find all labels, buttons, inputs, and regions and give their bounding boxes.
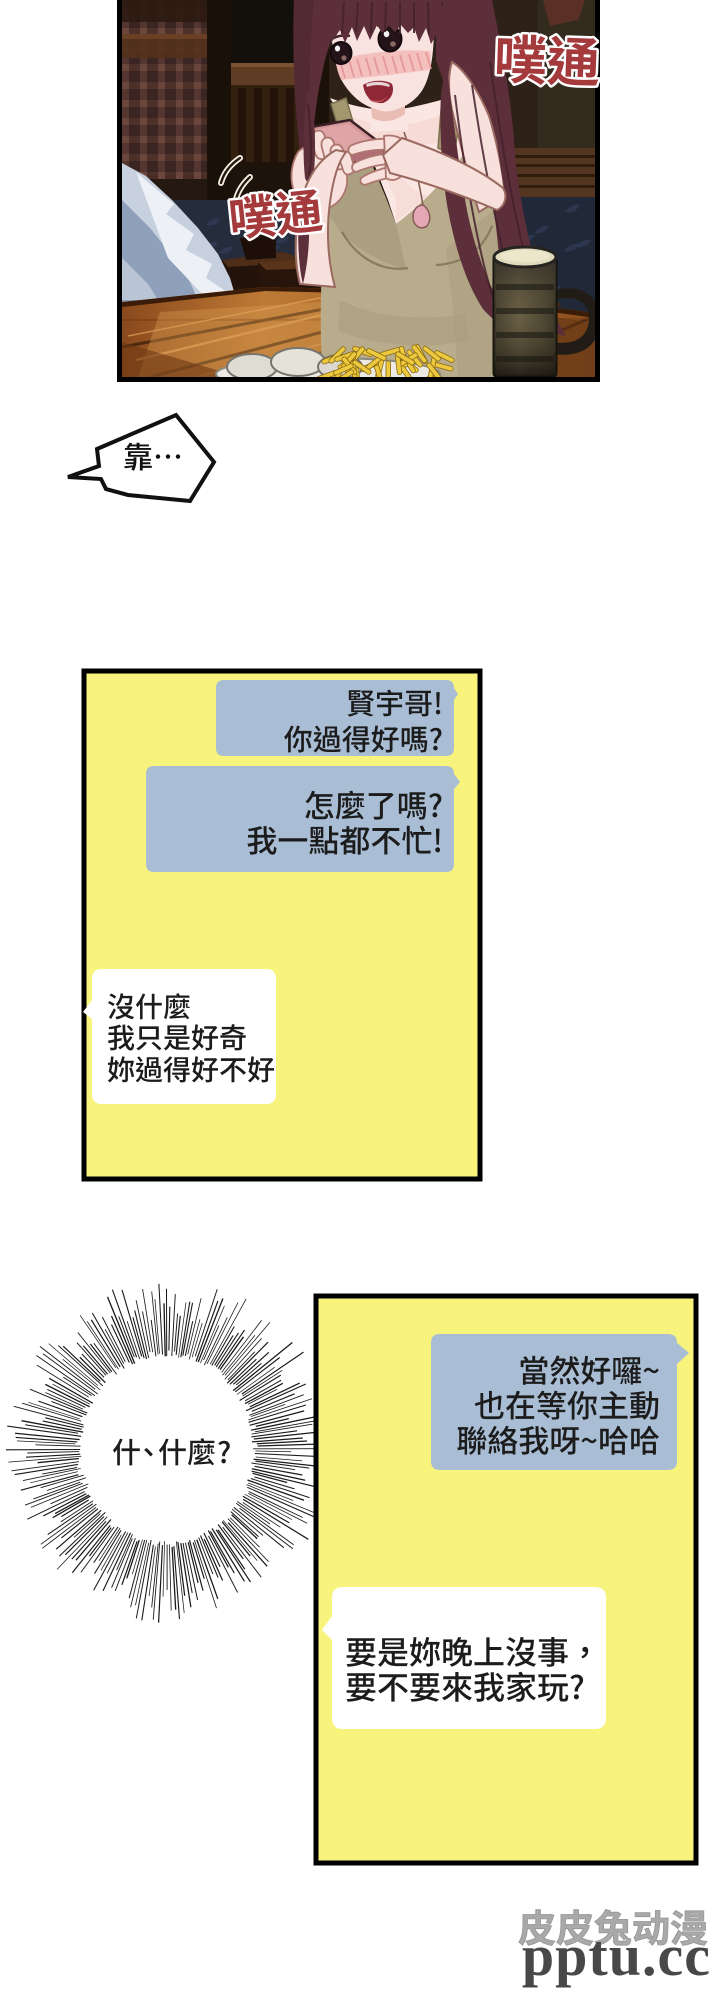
svg-text:pptu.cc: pptu.cc [522, 1923, 711, 1988]
